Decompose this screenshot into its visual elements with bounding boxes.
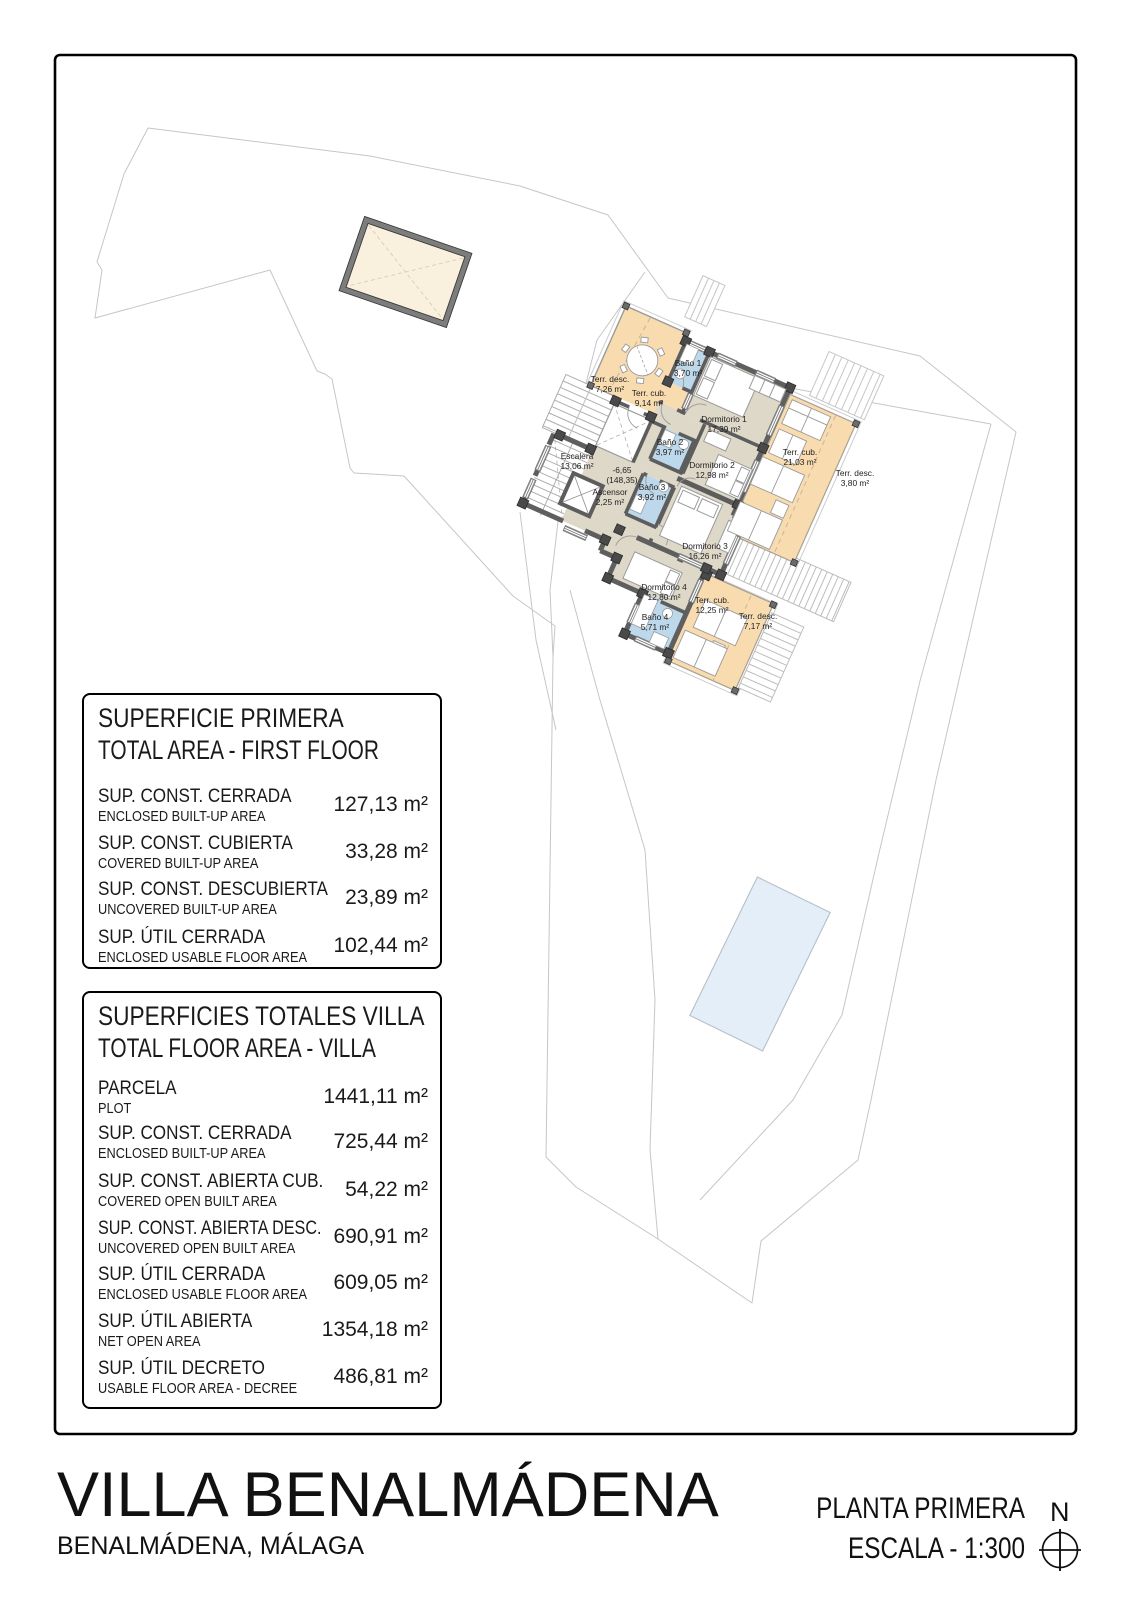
svg-text:Dormitorio 412,80 m²: Dormitorio 412,80 m²: [641, 582, 687, 602]
svg-text:Dormitorio 117,39 m²: Dormitorio 117,39 m²: [701, 414, 747, 434]
svg-text:Ascensor2,25 m²: Ascensor2,25 m²: [593, 487, 628, 507]
svg-text:Baño 33,92 m²: Baño 33,92 m²: [638, 482, 667, 502]
svg-text:Terr. cub.21,03 m²: Terr. cub.21,03 m²: [783, 447, 817, 467]
svg-text:Terr. cub.9,14 m²: Terr. cub.9,14 m²: [632, 388, 666, 408]
svg-text:Dormitorio 316,26 m²: Dormitorio 316,26 m²: [682, 541, 728, 561]
svg-text:Escalera13,06 m²: Escalera13,06 m²: [560, 451, 593, 471]
svg-text:Baño 45,71 m²: Baño 45,71 m²: [641, 612, 670, 632]
svg-text:Terr. desc.3,80 m²: Terr. desc.3,80 m²: [836, 468, 875, 488]
svg-text:Terr. desc.7,26 m²: Terr. desc.7,26 m²: [591, 374, 630, 394]
svg-text:Baño 23,97 m²: Baño 23,97 m²: [656, 437, 685, 457]
svg-text:Baño 13,70 m²: Baño 13,70 m²: [674, 358, 703, 378]
svg-text:Terr. desc.7,17 m²: Terr. desc.7,17 m²: [739, 611, 778, 631]
svg-text:Terr. cub.12,25 m²: Terr. cub.12,25 m²: [695, 595, 729, 615]
svg-text:Dormitorio 212,98 m²: Dormitorio 212,98 m²: [689, 460, 735, 480]
